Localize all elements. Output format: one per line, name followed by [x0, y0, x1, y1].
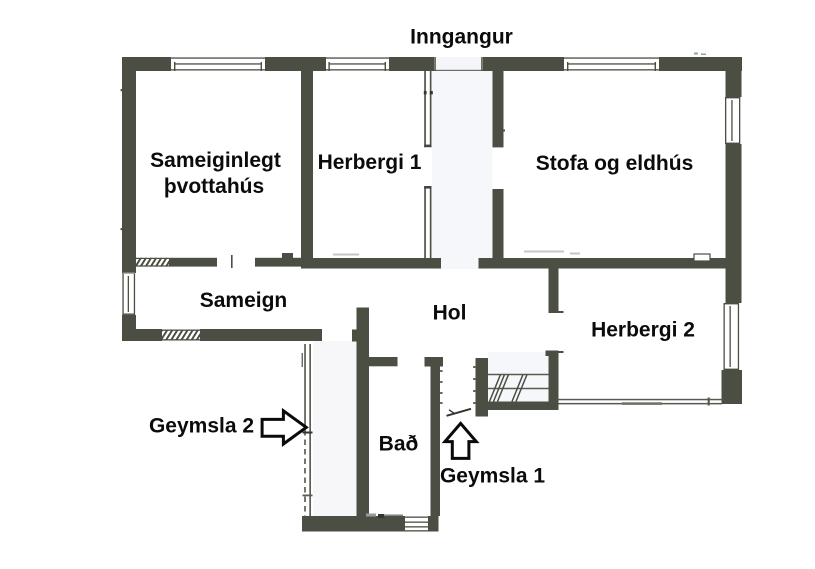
svg-text:Hol: Hol: [433, 302, 467, 325]
svg-text:þvottahús: þvottahús: [164, 175, 264, 198]
svg-text:Stofa og eldhús: Stofa og eldhús: [536, 152, 694, 175]
svg-text:Geymsla 2: Geymsla 2: [149, 415, 254, 438]
svg-text:Bað: Bað: [379, 432, 419, 455]
svg-text:Herbergi 2: Herbergi 2: [591, 319, 695, 342]
svg-text:Sameign: Sameign: [200, 289, 288, 312]
svg-text:Sameiginlegt: Sameiginlegt: [150, 149, 281, 172]
svg-text:Inngangur: Inngangur: [410, 26, 513, 49]
svg-text:Herbergi 1: Herbergi 1: [318, 151, 422, 174]
svg-text:Geymsla 1: Geymsla 1: [440, 465, 545, 488]
